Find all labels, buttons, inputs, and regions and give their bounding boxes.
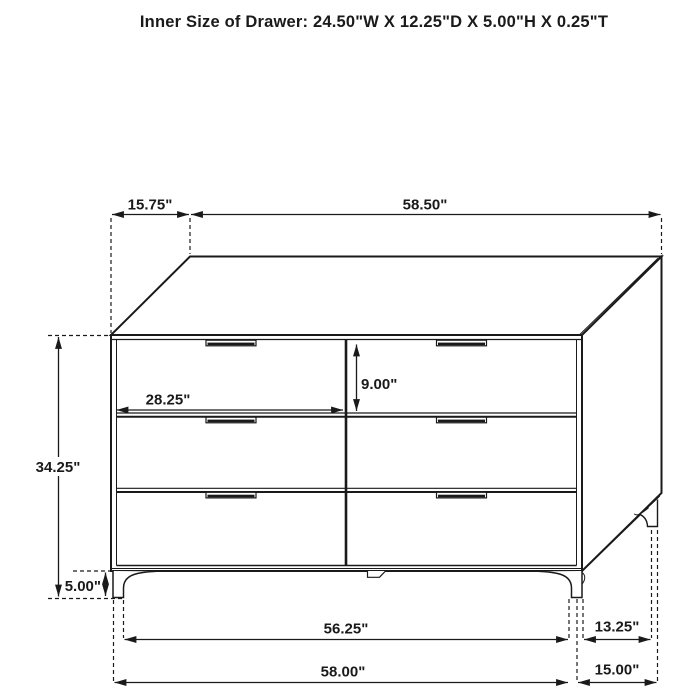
center-support-glide <box>368 571 386 577</box>
dim-label-base-width: 56.25" <box>324 621 369 638</box>
dim-leg-height: 5.00" <box>65 573 106 597</box>
dim-base-depth: 13.25" <box>584 619 651 640</box>
dim-overall-depth: 15.00" <box>578 662 657 683</box>
front-left-leg <box>113 571 156 598</box>
drawer-handle <box>437 417 487 423</box>
dim-label-top-width: 58.50" <box>403 197 448 214</box>
dim-label-leg-height: 5.00" <box>65 578 101 595</box>
dim-label-base-depth: 13.25" <box>595 619 640 636</box>
drawer-handle <box>206 492 256 498</box>
dimension-diagram: Inner Size of Drawer: 24.50"W X 12.25"D … <box>0 0 700 700</box>
dim-top-width: 58.50" <box>191 197 661 215</box>
diagram-title: Inner Size of Drawer: 24.50"W X 12.25"D … <box>140 13 608 31</box>
dim-label-drawer-height: 9.00" <box>361 376 397 393</box>
dim-label-overall-width: 58.00" <box>321 664 366 681</box>
front-right-leg <box>540 571 583 598</box>
dim-label-top-depth: 15.75" <box>128 197 173 214</box>
drawer-handle <box>206 417 256 423</box>
dresser-top-face <box>111 257 662 336</box>
dim-label-overall-depth: 15.00" <box>595 662 640 679</box>
dim-top-depth: 15.75" <box>112 197 189 215</box>
dim-label-drawer-width: 28.25" <box>146 392 191 409</box>
dresser-diagram-canvas: Inner Size of Drawer: 24.50"W X 12.25"D … <box>0 0 700 700</box>
drawer-handle <box>206 340 256 346</box>
dim-base-width: 56.25" <box>125 621 569 640</box>
drawer-handle <box>437 340 487 346</box>
dim-label-body-height: 34.25" <box>36 459 81 476</box>
dim-overall-width: 58.00" <box>115 664 569 683</box>
dresser-drawing <box>111 257 662 598</box>
dim-body-height: 34.25" <box>32 337 84 597</box>
drawer-handle <box>437 492 487 498</box>
